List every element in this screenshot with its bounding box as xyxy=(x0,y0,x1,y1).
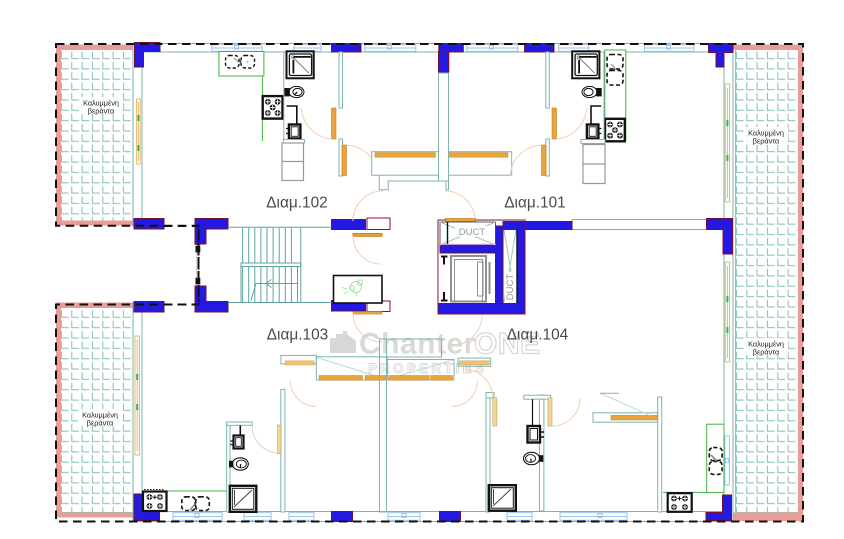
svg-text:βεράντα: βεράντα xyxy=(753,137,780,146)
svg-text:Διαμ.102: Διαμ.102 xyxy=(266,194,327,211)
svg-text:DUCT: DUCT xyxy=(459,227,486,238)
svg-text:βεράντα: βεράντα xyxy=(753,348,780,357)
svg-text:βεράντα: βεράντα xyxy=(87,419,114,428)
svg-text:Διαμ.104: Διαμ.104 xyxy=(507,326,569,343)
svg-text:βεράντα: βεράντα xyxy=(88,107,115,116)
svg-text:Διαμ.101: Διαμ.101 xyxy=(504,194,565,211)
svg-text:DUCT: DUCT xyxy=(505,274,516,301)
svg-text:Διαμ.103: Διαμ.103 xyxy=(267,326,328,343)
